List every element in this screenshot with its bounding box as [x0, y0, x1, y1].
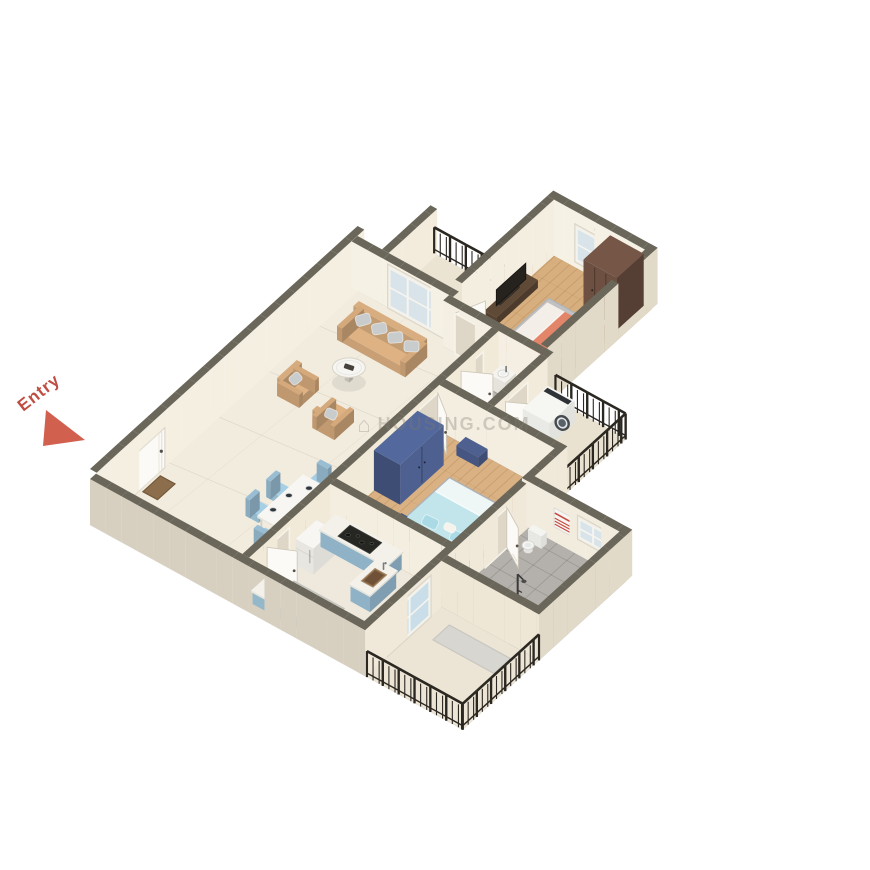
- floor-plan-3d: [0, 0, 870, 870]
- coffee-table: [332, 358, 366, 392]
- railing-balcony-bottom-south: [462, 703, 463, 729]
- entry-arrow-icon: [40, 406, 92, 452]
- entry-arrow-triangle: [43, 410, 85, 446]
- floor-plan-stage: Entry ⌂ HOUSING.COM: [0, 0, 870, 870]
